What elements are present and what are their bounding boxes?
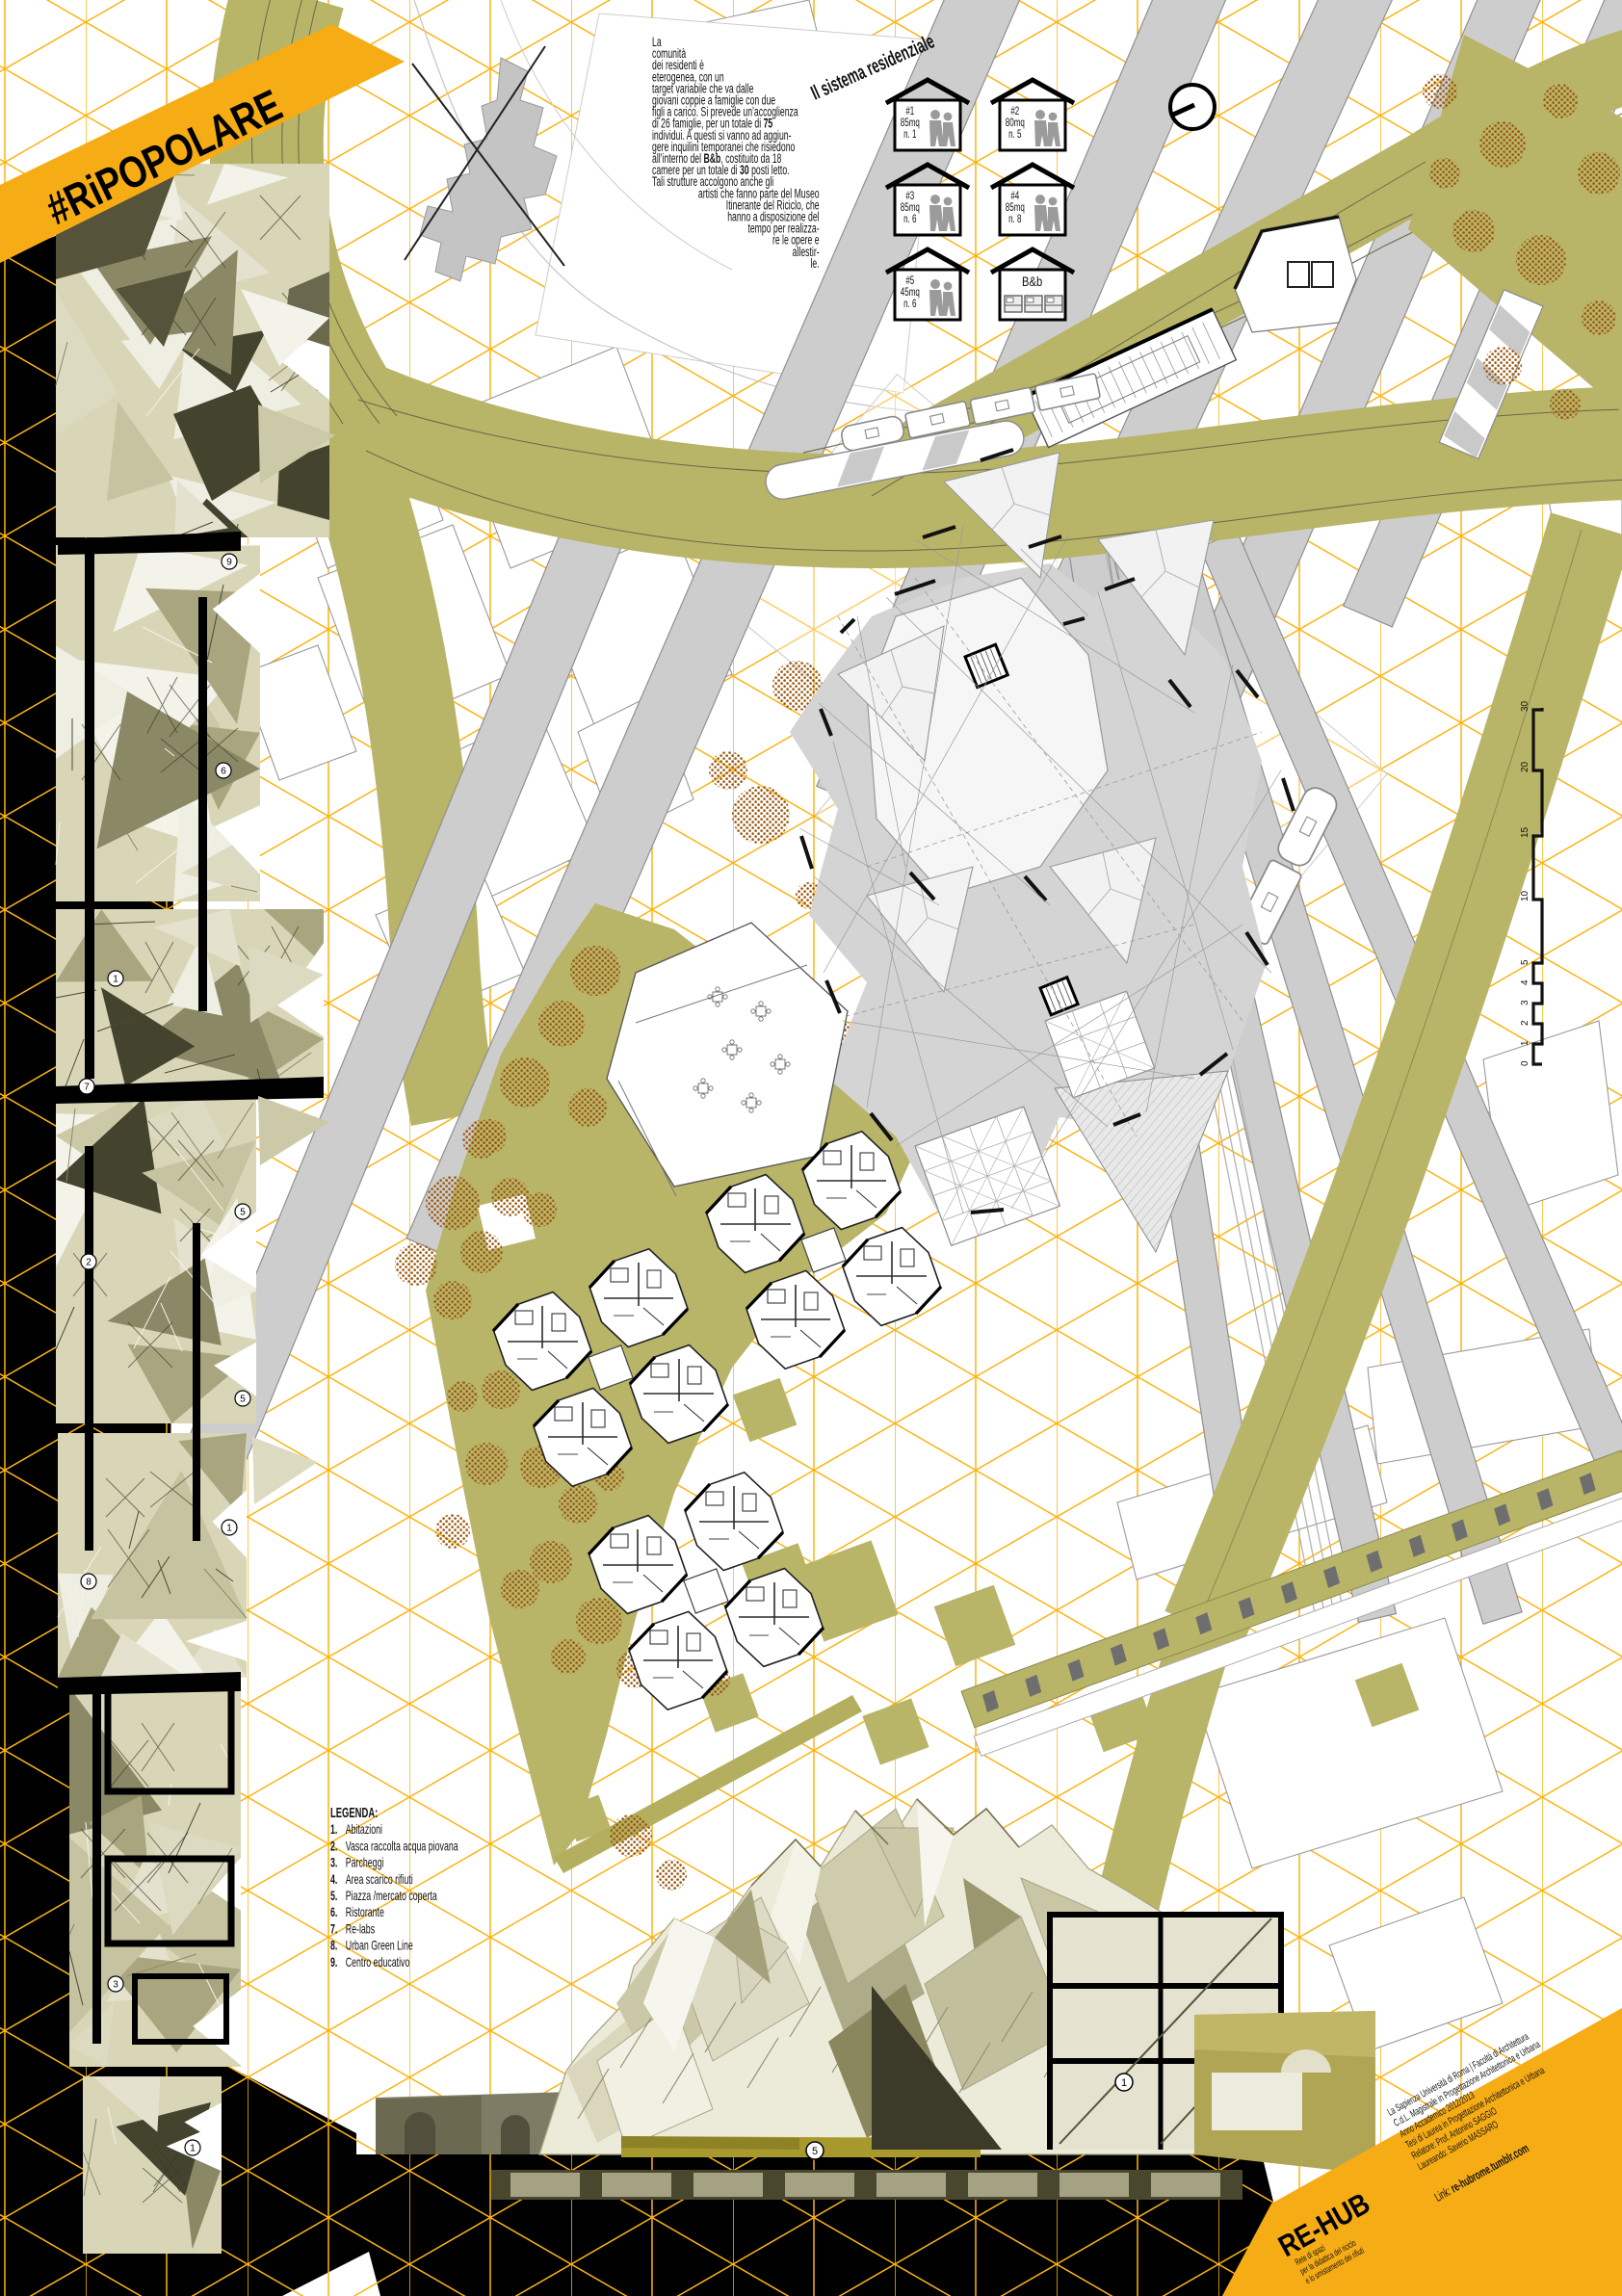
svg-text:7: 7 xyxy=(84,1083,90,1093)
svg-text:#3: #3 xyxy=(905,191,914,203)
svg-text:4.: 4. xyxy=(330,1872,337,1888)
svg-text:le.: le. xyxy=(810,256,819,272)
svg-text:85mq: 85mq xyxy=(901,202,920,215)
svg-text:85mq: 85mq xyxy=(1006,202,1025,215)
svg-text:5.: 5. xyxy=(330,1889,337,1904)
svg-text:0: 0 xyxy=(1520,1060,1530,1066)
svg-text:4: 4 xyxy=(1520,979,1530,985)
svg-text:n. 6: n. 6 xyxy=(903,299,917,311)
svg-text:8: 8 xyxy=(86,1578,92,1588)
svg-text:3: 3 xyxy=(1520,1000,1530,1005)
svg-text:Area scarico rifiuti: Area scarico rifiuti xyxy=(346,1872,413,1888)
svg-text:8.: 8. xyxy=(330,1939,337,1954)
svg-text:Ristorante: Ristorante xyxy=(346,1905,384,1920)
svg-text:n. 5: n. 5 xyxy=(1008,129,1022,142)
svg-text:1: 1 xyxy=(113,975,118,985)
svg-text:80mq: 80mq xyxy=(1006,117,1025,130)
svg-text:LEGENDA:: LEGENDA: xyxy=(330,1805,378,1821)
svg-text:n. 6: n. 6 xyxy=(903,214,917,226)
svg-text:15: 15 xyxy=(1520,826,1530,838)
svg-text:#4: #4 xyxy=(1010,191,1019,203)
svg-text:B&b: B&b xyxy=(1022,274,1042,289)
svg-text:1: 1 xyxy=(1520,1040,1530,1046)
svg-text:3.: 3. xyxy=(330,1856,337,1871)
svg-text:5: 5 xyxy=(812,2146,818,2157)
svg-text:#2: #2 xyxy=(1010,106,1019,118)
svg-text:n. 8: n. 8 xyxy=(1008,214,1022,226)
svg-text:Urban Green Line: Urban Green Line xyxy=(346,1939,413,1954)
svg-text:5: 5 xyxy=(240,1395,246,1405)
svg-text:6.: 6. xyxy=(330,1905,337,1920)
svg-text:30: 30 xyxy=(1520,700,1530,712)
svg-text:Piazza /mercato coperta: Piazza /mercato coperta xyxy=(346,1889,437,1904)
svg-text:45mq: 45mq xyxy=(901,287,920,300)
svg-text:1: 1 xyxy=(226,1524,232,1534)
svg-text:5: 5 xyxy=(1520,959,1530,965)
svg-text:Vasca raccolta acqua piovana: Vasca raccolta acqua piovana xyxy=(346,1839,458,1854)
svg-text:9: 9 xyxy=(226,558,232,568)
svg-text:#1: #1 xyxy=(905,106,914,118)
svg-text:Abitazioni: Abitazioni xyxy=(346,1822,382,1838)
svg-text:Re-labs: Re-labs xyxy=(346,1921,375,1937)
svg-text:1.: 1. xyxy=(330,1822,337,1838)
svg-text:6: 6 xyxy=(221,767,226,777)
svg-text:10: 10 xyxy=(1520,890,1530,901)
svg-text:#5: #5 xyxy=(905,275,914,288)
svg-text:85mq: 85mq xyxy=(901,117,920,130)
svg-text:2: 2 xyxy=(86,1258,92,1268)
svg-text:2.: 2. xyxy=(330,1839,337,1854)
svg-text:2: 2 xyxy=(1520,1020,1530,1026)
svg-text:20: 20 xyxy=(1520,761,1530,772)
svg-text:5: 5 xyxy=(240,1208,246,1218)
svg-text:n. 1: n. 1 xyxy=(903,129,917,142)
svg-text:7.: 7. xyxy=(330,1921,337,1937)
svg-text:Parcheggi: Parcheggi xyxy=(346,1856,384,1871)
svg-text:1: 1 xyxy=(190,2144,196,2154)
svg-text:Centro educativo: Centro educativo xyxy=(346,1955,410,1970)
svg-text:9.: 9. xyxy=(330,1955,337,1970)
svg-text:3: 3 xyxy=(113,1980,118,1991)
svg-text:1: 1 xyxy=(1121,2077,1127,2089)
